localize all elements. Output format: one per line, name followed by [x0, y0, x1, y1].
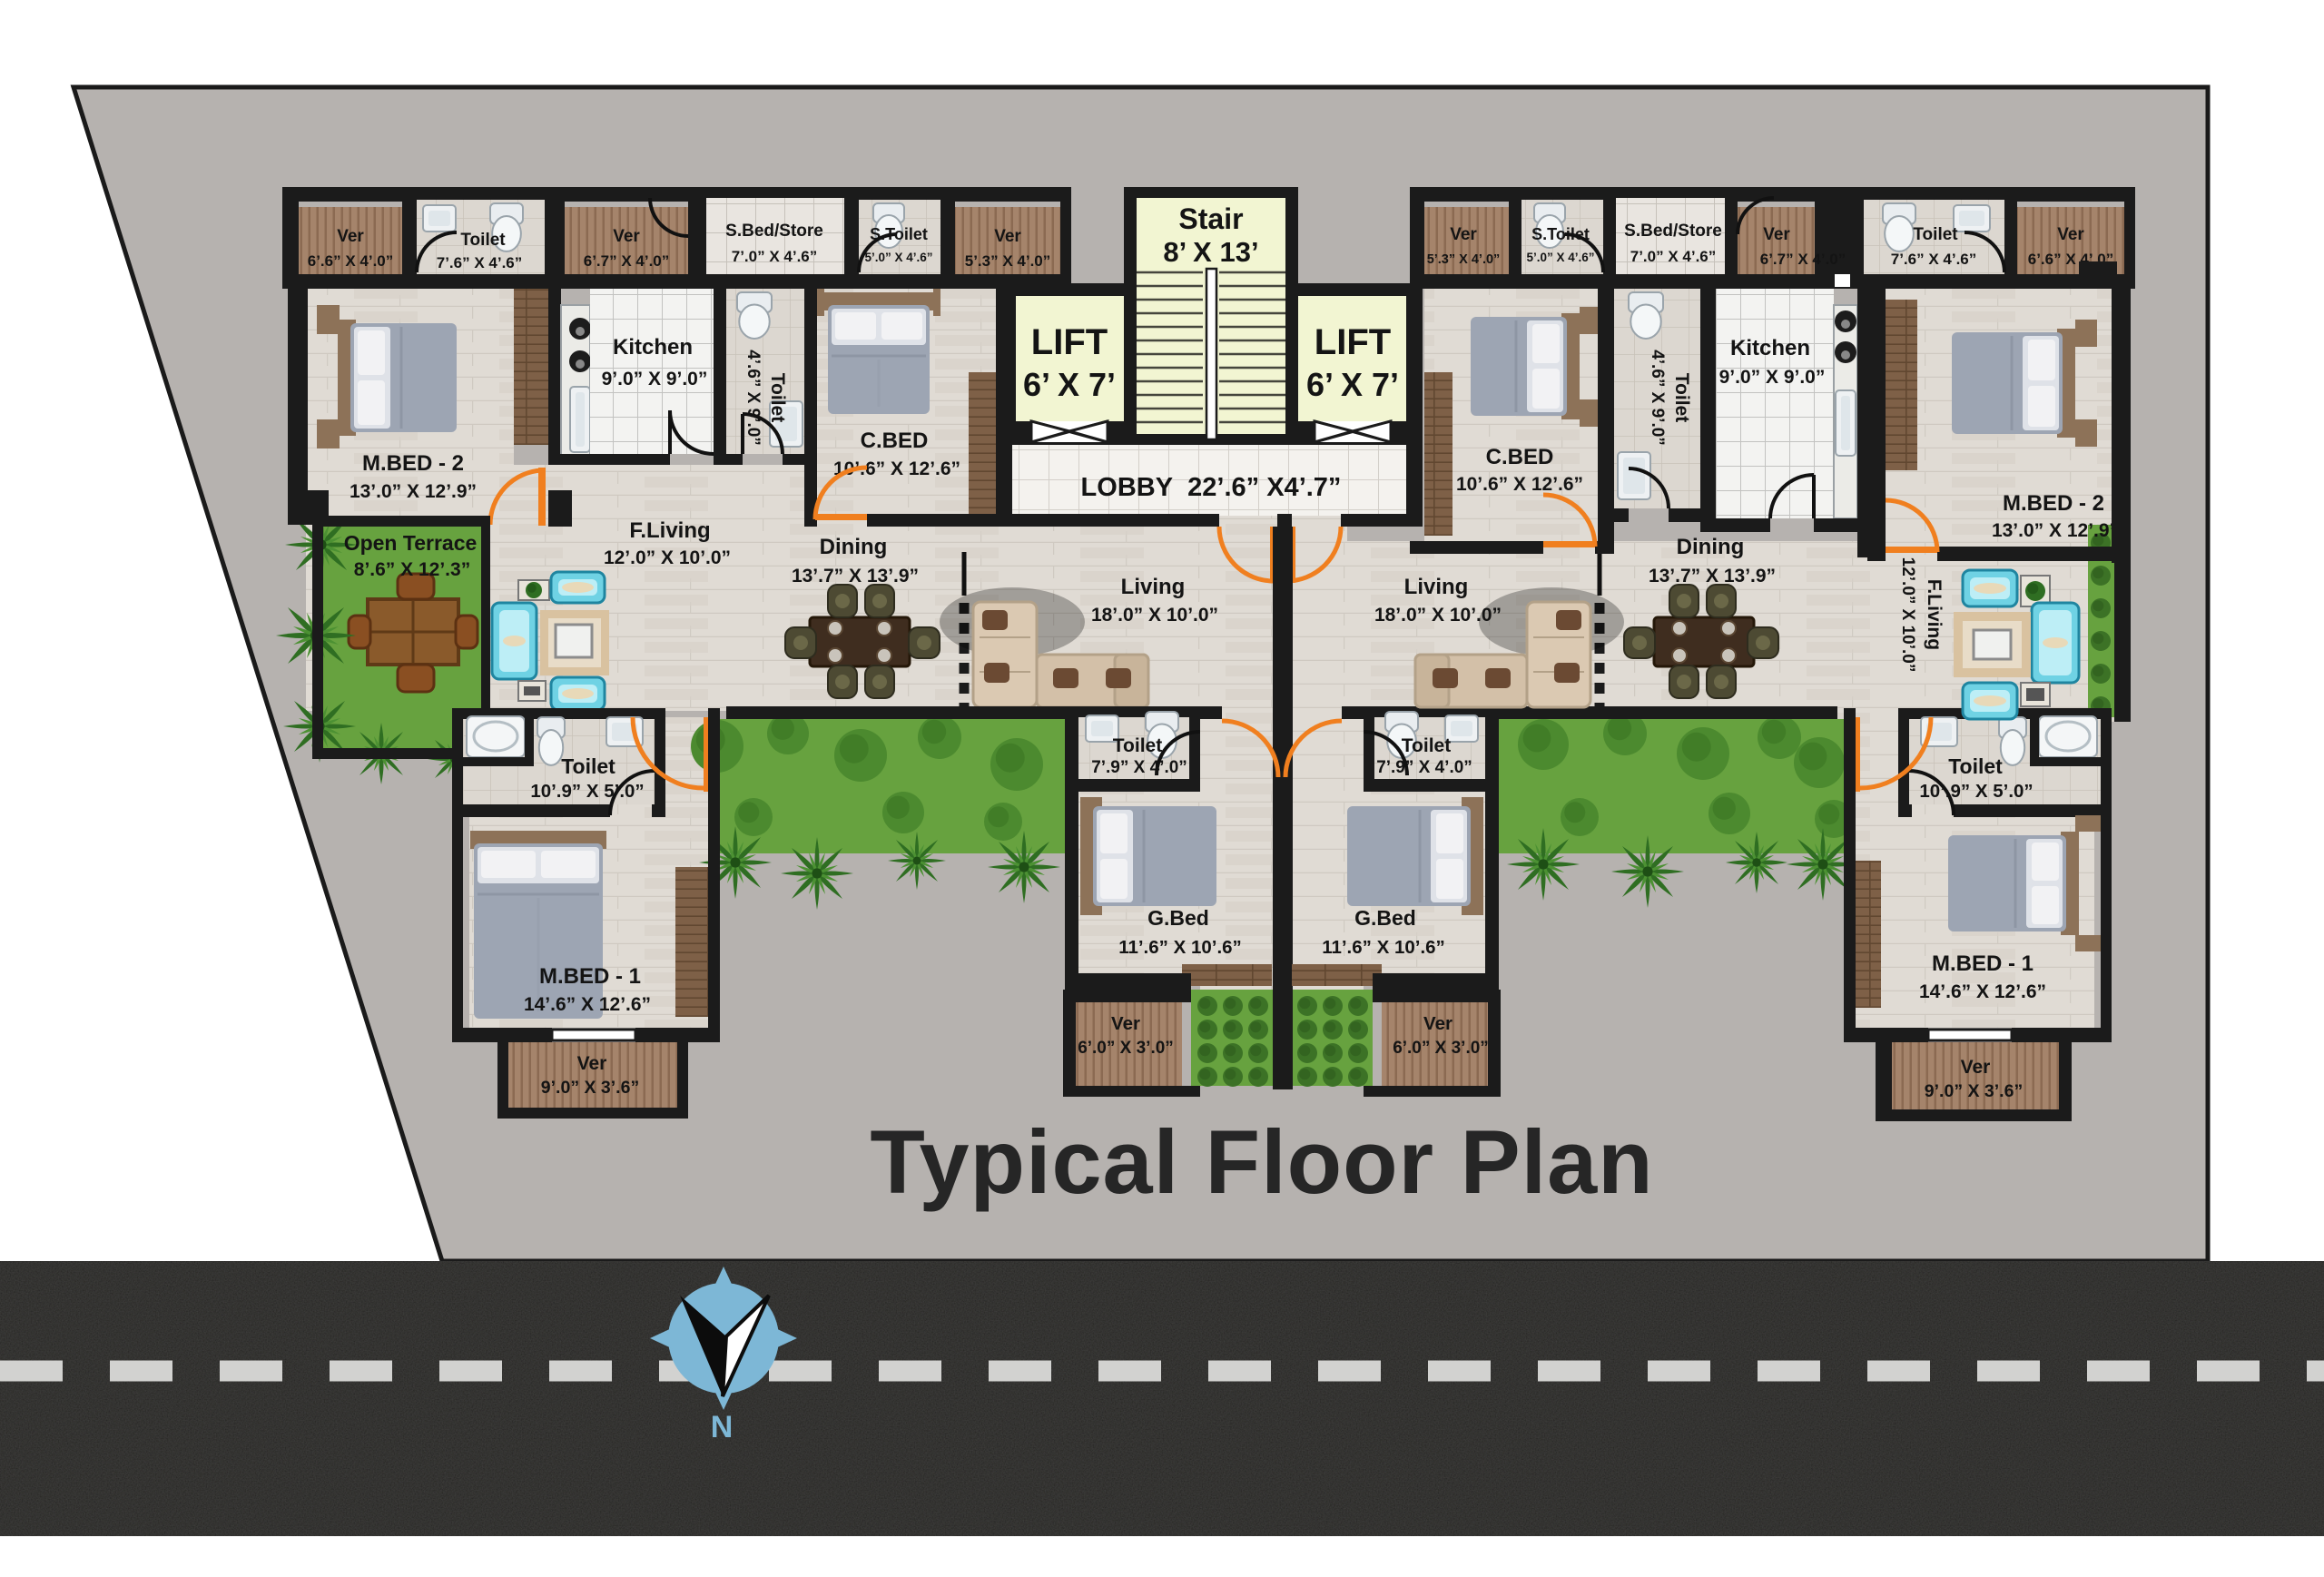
svg-text:7’.9” X 4’.0”: 7’.9” X 4’.0” [1091, 758, 1187, 777]
svg-text:Dining: Dining [1677, 535, 1745, 559]
svg-text:9’.0” X 3’.6”: 9’.0” X 3’.6” [1925, 1081, 2023, 1101]
svg-text:Ver: Ver [1450, 225, 1477, 244]
svg-text:G.Bed: G.Bed [1354, 906, 1416, 930]
svg-text:7’.9” X 4’.0”: 7’.9” X 4’.0” [1376, 758, 1472, 777]
svg-text:6’.7” X 4’.0”: 6’.7” X 4’.0” [1760, 251, 1846, 268]
svg-text:7’.6” X 4’.6”: 7’.6” X 4’.6” [437, 254, 523, 271]
svg-text:C.BED: C.BED [861, 429, 929, 453]
svg-text:11’.6” X 10’.6”: 11’.6” X 10’.6” [1118, 937, 1242, 958]
svg-text:9’.0” X 9’.0”: 9’.0” X 9’.0” [1719, 367, 1826, 388]
svg-text:12’.0” X 10’.0”: 12’.0” X 10’.0” [1898, 557, 1917, 673]
svg-text:Toilet: Toilet [1913, 225, 1958, 244]
svg-text:6’.0” X 3’.0”: 6’.0” X 3’.0” [1078, 1039, 1174, 1058]
svg-text:10’.9” X 5’.0”: 10’.9” X 5’.0” [1919, 781, 2033, 802]
svg-text:7’.0” X 4’.6”: 7’.0” X 4’.6” [732, 248, 818, 265]
svg-text:6’.6” X 4’.0”: 6’.6” X 4’.0” [308, 252, 394, 270]
svg-text:11’.6” X 10’.6”: 11’.6” X 10’.6” [1322, 937, 1445, 958]
svg-text:Kitchen: Kitchen [1730, 336, 1810, 360]
svg-text:13’.0” X 12’.9”: 13’.0” X 12’.9” [350, 481, 477, 502]
svg-text:6’.7” X 4’.0”: 6’.7” X 4’.0” [584, 252, 670, 270]
svg-text:Dining: Dining [820, 535, 888, 559]
svg-text:7’.6” X 4’.6”: 7’.6” X 4’.6” [1891, 251, 1977, 268]
svg-text:10’.9” X 5’.0”: 10’.9” X 5’.0” [530, 781, 644, 802]
svg-text:18’.0” X 10’.0”: 18’.0” X 10’.0” [1091, 605, 1218, 626]
svg-text:S.Toilet: S.Toilet [1531, 225, 1590, 243]
svg-text:6’ X 7’: 6’ X 7’ [1023, 366, 1116, 403]
svg-text:Stair: Stair [1178, 202, 1243, 235]
svg-text:Ver: Ver [577, 1053, 607, 1074]
svg-text:C.BED: C.BED [1486, 445, 1554, 469]
svg-text:Toilet: Toilet [1948, 754, 2003, 778]
svg-text:Ver: Ver [2057, 225, 2084, 244]
svg-text:13’.0” X 12’.9”: 13’.0” X 12’.9” [1992, 520, 2119, 541]
svg-text:9’.0” X 3’.6”: 9’.0” X 3’.6” [541, 1078, 639, 1098]
svg-text:14’.6” X 12’.6”: 14’.6” X 12’.6” [524, 994, 651, 1015]
svg-text:Ver: Ver [1961, 1057, 1991, 1078]
svg-text:Ver: Ver [1111, 1013, 1140, 1034]
svg-text:M.BED - 2: M.BED - 2 [2003, 491, 2104, 516]
svg-text:6’ X 7’: 6’ X 7’ [1306, 366, 1399, 403]
svg-text:13’.7” X 13’.9”: 13’.7” X 13’.9” [792, 566, 919, 586]
svg-text:Toilet: Toilet [460, 231, 506, 250]
svg-text:Ver: Ver [337, 227, 364, 246]
svg-text:S.Bed/Store: S.Bed/Store [1624, 222, 1722, 241]
svg-text:4’.6” X 9’.0”: 4’.6” X 9’.0” [743, 350, 763, 446]
svg-text:Toilet: Toilet [1402, 735, 1451, 756]
svg-text:14’.6” X 12’.6”: 14’.6” X 12’.6” [1919, 981, 2046, 1002]
svg-text:S.Bed/Store: S.Bed/Store [725, 222, 823, 241]
svg-text:Toilet: Toilet [561, 754, 615, 778]
svg-text:LIFT: LIFT [1315, 322, 1391, 362]
svg-text:Ver: Ver [994, 227, 1021, 246]
svg-text:Typical Floor Plan: Typical Floor Plan [870, 1111, 1653, 1212]
svg-text:M.BED - 1: M.BED - 1 [539, 964, 641, 989]
svg-text:M.BED - 1: M.BED - 1 [1932, 951, 2033, 976]
svg-text:Toilet: Toilet [1113, 735, 1162, 756]
svg-text:Ver: Ver [613, 227, 640, 246]
svg-text:5’.3” X 4’.0”: 5’.3” X 4’.0” [965, 252, 1051, 270]
svg-text:Ver: Ver [1423, 1013, 1452, 1034]
svg-text:LOBBY 22’.6” X4’.7”: LOBBY 22’.6” X4’.7” [1081, 473, 1342, 502]
svg-text:12’.0” X 10’.0”: 12’.0” X 10’.0” [604, 547, 731, 568]
svg-text:Toilet: Toilet [1671, 373, 1692, 422]
svg-text:Kitchen: Kitchen [613, 335, 693, 360]
svg-text:M.BED - 2: M.BED - 2 [362, 451, 464, 476]
svg-text:7’.0” X 4’.6”: 7’.0” X 4’.6” [1630, 248, 1717, 265]
svg-text:LIFT: LIFT [1031, 322, 1108, 362]
svg-text:4’.6” X 9’.0”: 4’.6” X 9’.0” [1648, 350, 1667, 446]
svg-text:5’.3” X 4’.0”: 5’.3” X 4’.0” [1427, 252, 1501, 267]
svg-text:10’.6” X 12’.6”: 10’.6” X 12’.6” [1456, 474, 1583, 495]
svg-text:Ver: Ver [1763, 225, 1790, 244]
svg-text:8’.6” X 12’.3”: 8’.6” X 12’.3” [354, 559, 470, 580]
svg-text:5’.0” X 4’.6”: 5’.0” X 4’.6” [864, 251, 932, 264]
svg-text:N: N [711, 1410, 734, 1444]
svg-text:13’.7” X 13’.9”: 13’.7” X 13’.9” [1649, 566, 1776, 586]
svg-text:Toilet: Toilet [767, 373, 788, 422]
svg-text:F.Living: F.Living [1924, 579, 1945, 650]
svg-text:18’.0” X 10’.0”: 18’.0” X 10’.0” [1374, 605, 1502, 626]
svg-text:F.Living: F.Living [629, 518, 710, 543]
svg-text:Open Terrace: Open Terrace [344, 531, 478, 555]
svg-text:G.Bed: G.Bed [1147, 906, 1209, 930]
svg-text:Living: Living [1404, 575, 1469, 599]
svg-text:Living: Living [1121, 575, 1186, 599]
svg-text:9’.0” X 9’.0”: 9’.0” X 9’.0” [602, 369, 708, 389]
svg-text:8’ X 13’: 8’ X 13’ [1163, 236, 1258, 268]
svg-text:6’.0” X 3’.0”: 6’.0” X 3’.0” [1393, 1039, 1489, 1058]
svg-text:5’.0” X 4’.6”: 5’.0” X 4’.6” [1526, 251, 1594, 264]
